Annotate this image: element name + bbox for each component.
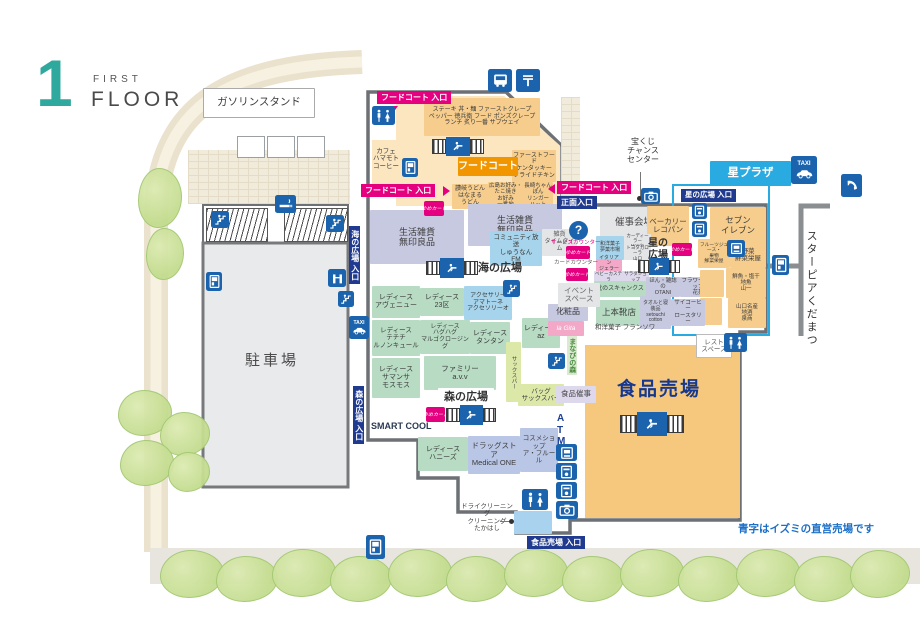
food-event-label: 食品催事 xyxy=(556,386,596,403)
information-icon: ? xyxy=(569,221,588,240)
paved-plaza xyxy=(188,150,350,204)
shop-yamaichi: 鮮魚・塩干 地魚 山一 xyxy=(726,268,766,298)
coin-locker-icon xyxy=(556,463,577,480)
post-mark: 〒 xyxy=(521,71,535,91)
escalator-icon xyxy=(620,412,684,436)
shop-shunan-fm: コミュニティ放送 しゅうなん FM xyxy=(490,231,542,266)
toilet-icon xyxy=(724,333,747,352)
entrance-food-hall: 食品売場 入口 xyxy=(527,536,585,549)
taxi-icon: TAXI xyxy=(791,156,817,184)
entrance-sea-plaza: 海の広場 入口 xyxy=(349,226,360,284)
coin-locker-icon xyxy=(692,221,707,237)
information-question: ? xyxy=(575,224,582,238)
yume-card-logo: ゆめカード xyxy=(566,268,588,281)
stairs-icon xyxy=(338,291,354,307)
smart-cool-label: SMART COOL xyxy=(371,421,432,431)
toilet-icon xyxy=(372,106,395,125)
shop-techichi: レディース テチチ ルノンキュール xyxy=(372,320,420,356)
food-hall-label: 食品売場 xyxy=(617,379,701,401)
starpia-kudamatsu-label: スターピアくだまつ xyxy=(804,226,818,351)
shop-unlabeled xyxy=(700,270,724,297)
parking-kiosk xyxy=(297,136,325,158)
hoshi-plaza-tab: 星プラザ xyxy=(710,161,791,186)
vending-machine-icon xyxy=(402,158,418,177)
toilet-icon xyxy=(522,489,548,510)
post-office-icon: 〒 xyxy=(516,69,540,92)
shop-sensai-fruit: フルーツジュース・ 果物 鮮菜栄屋 xyxy=(698,239,730,268)
entrance-arrow xyxy=(548,184,555,194)
escalator-icon xyxy=(432,137,484,156)
yume-card-logo: ゆめカード xyxy=(672,243,692,256)
smoking-area-icon xyxy=(275,195,296,213)
floor-label-first: FIRST xyxy=(93,74,142,86)
shop-otani: ほん・雑誌の OTANI xyxy=(646,277,680,297)
card-counter-label: カードカウンター xyxy=(554,260,598,266)
izumi-notice: 青字はイズミの直営売場です xyxy=(738,523,874,535)
sea-plaza-label: 海の広場 xyxy=(478,262,522,275)
atm-corner-label: A T M xyxy=(557,413,565,448)
parking-kiosk xyxy=(267,136,295,158)
shop-uemoto-shoes: 上本靴店 xyxy=(596,300,642,326)
coin-locker-icon xyxy=(692,203,707,219)
entrance-star-plaza: 星の広場 入口 xyxy=(681,189,736,202)
gate-icon xyxy=(328,269,346,287)
shop-takahashi-cleaning: ドライクリーニング クリーニング たかはし xyxy=(460,503,514,533)
stairs-icon xyxy=(503,280,520,297)
photo-booth-icon xyxy=(556,501,578,519)
cosmetics-brand-logo: la Gita xyxy=(548,321,584,336)
stairs-icon xyxy=(211,211,229,228)
shop-cafe-hamamoto: カフェ ハマモト コーヒー xyxy=(373,148,399,170)
atm-icon xyxy=(727,240,745,257)
bus-stop-icon xyxy=(488,69,512,92)
stairs-icon xyxy=(548,353,565,369)
parking-kiosk xyxy=(237,136,265,158)
shop-francois: 和洋菓子 フランソワ xyxy=(595,324,655,331)
leader-dot xyxy=(509,519,514,524)
takahashi-booth xyxy=(514,511,552,534)
photo-booth-icon xyxy=(641,188,660,204)
floor-number: 1 xyxy=(36,50,73,116)
floor-label-floor: FLOOR xyxy=(91,88,183,112)
shop-honeys: レディース ハニーズ xyxy=(418,437,468,471)
shop-avv: ファミリー a.v.v xyxy=(424,356,496,390)
entrance-food-court-left: フードコート 入口 xyxy=(361,184,435,197)
entrance-food-court-top: フードコート 入口 xyxy=(377,91,451,104)
yume-card-logo: ゆめカード xyxy=(566,246,590,259)
shop-a-fleur: コスメショップ ア・フルール xyxy=(520,428,558,472)
escalator-icon xyxy=(426,258,478,278)
stairs-icon xyxy=(326,215,344,232)
floor-map: 1 FIRST FLOOR ガソリンスタンド 駐車場 食品売場 ステーキ 丼・麺… xyxy=(0,0,920,631)
lottery-chance-center: 宝くじ チャンス センター xyxy=(615,137,671,165)
food-court-badge: フードコート xyxy=(458,157,518,176)
yume-card-logo: ゆめカード xyxy=(424,201,444,216)
entrance-arrow xyxy=(443,186,450,196)
entrance-forest-plaza: 森の広場 入口 xyxy=(353,386,364,444)
shop-scankusu: 靴のスキャンクス xyxy=(594,281,646,297)
escalator-icon xyxy=(638,258,680,275)
entrance-main: 正面入口 xyxy=(557,196,597,209)
gas-station: ガソリンスタンド xyxy=(203,88,315,118)
parking-label: 駐車場 xyxy=(245,352,299,369)
vending-machine-icon xyxy=(366,535,385,559)
public-phone-icon xyxy=(841,174,862,197)
shop-hughug: レディース ハグハグ マルゴクロージング xyxy=(420,320,470,354)
shop-medical-one: ドラッグストア Medical ONE xyxy=(468,436,520,474)
escalator-icon xyxy=(446,405,496,425)
coin-locker-icon xyxy=(556,482,577,499)
shop-tamtam: レディース タンタン xyxy=(470,322,510,354)
vending-machine-icon xyxy=(772,255,789,275)
atm-icon xyxy=(556,444,577,461)
taxi-icon: TAXI xyxy=(349,316,369,339)
shop-ladies-23ku: レディース 23区 xyxy=(420,288,464,316)
manabinomori-label: まなびの森 xyxy=(567,336,577,375)
shop-ladies-avenue: レディース アヴェニュー xyxy=(372,286,420,318)
shop-sai-coffee: サイコーヒー ロースタリー xyxy=(671,299,705,326)
vending-machine-icon xyxy=(206,272,222,291)
entrance-food-court-right: フードコート 入口 xyxy=(557,181,631,194)
shop-muji: 生活雑貨 無印良品 xyxy=(370,210,464,264)
shop-samansa-mos2: レディース サマンサ モスモス xyxy=(372,358,420,398)
event-space: イベント スペース xyxy=(558,283,600,307)
forest-plaza-label: 森の広場 xyxy=(438,388,494,406)
taxi-text: TAXI xyxy=(797,161,810,168)
yume-card-logo: ゆめカード xyxy=(426,407,445,422)
shop-kfc: ファーストフード ケンタッキー フライドチキン xyxy=(512,150,556,182)
shop-izumisho: 山口名産 地酒 泉商 xyxy=(728,298,766,328)
